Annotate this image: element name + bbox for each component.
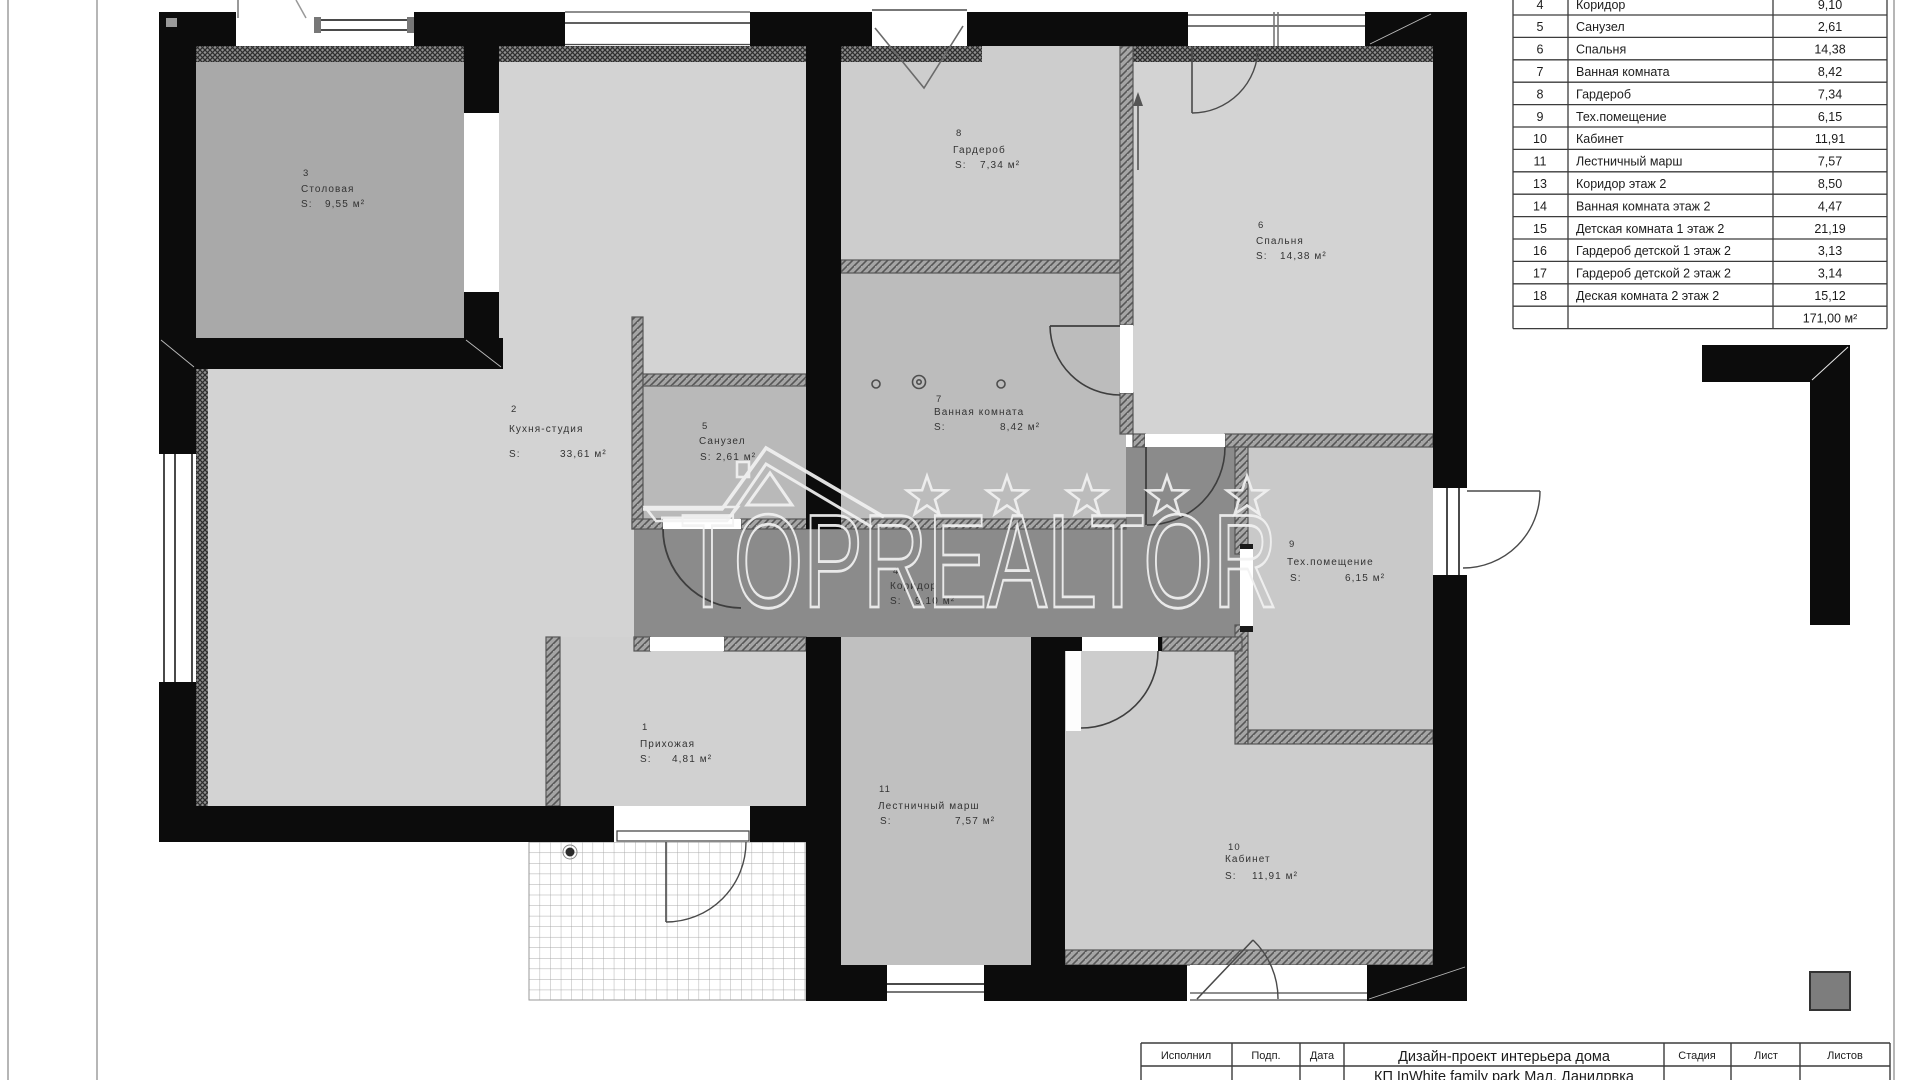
svg-text:17: 17 xyxy=(1533,267,1547,281)
svg-text:S:: S: xyxy=(640,754,652,765)
svg-text:Дизайн-проект интерьера дома: Дизайн-проект интерьера дома xyxy=(1398,1049,1611,1065)
svg-text:7: 7 xyxy=(1537,65,1544,79)
svg-text:Детская комната 1 этаж 2: Детская комната 1 этаж 2 xyxy=(1576,222,1724,236)
svg-text:Ванная комната этаж 2: Ванная комната этаж 2 xyxy=(1576,199,1711,213)
svg-text:6,15 м²: 6,15 м² xyxy=(1345,573,1385,584)
svg-text:7,34 м²: 7,34 м² xyxy=(980,160,1020,171)
svg-text:Прихожая: Прихожая xyxy=(640,739,695,750)
svg-text:Деская комната 2 этаж 2: Деская комната 2 этаж 2 xyxy=(1576,289,1719,303)
svg-text:S:: S: xyxy=(1225,871,1237,882)
svg-text:Спальня: Спальня xyxy=(1256,236,1304,247)
svg-text:Спальня: Спальня xyxy=(1576,43,1626,57)
svg-text:11: 11 xyxy=(879,784,891,795)
svg-text:Гардероб: Гардероб xyxy=(953,144,1006,156)
svg-text:7: 7 xyxy=(936,394,942,405)
svg-text:Дата: Дата xyxy=(1310,1050,1335,1062)
svg-text:Исполнил: Исполнил xyxy=(1161,1050,1211,1062)
svg-text:9: 9 xyxy=(1289,539,1295,550)
svg-text:5: 5 xyxy=(702,421,708,432)
svg-text:S:: S: xyxy=(1256,251,1268,262)
svg-text:8: 8 xyxy=(956,128,962,139)
svg-text:15,12: 15,12 xyxy=(1814,289,1845,303)
svg-text:Санузел: Санузел xyxy=(699,436,746,447)
svg-text:9,10: 9,10 xyxy=(1818,0,1842,12)
svg-text:15: 15 xyxy=(1533,222,1547,236)
svg-text:Кабинет: Кабинет xyxy=(1225,853,1271,865)
svg-text:3,14: 3,14 xyxy=(1818,267,1842,281)
svg-text:Лестничный марш: Лестничный марш xyxy=(878,801,980,812)
svg-text:S:: S: xyxy=(509,449,521,460)
svg-text:Ванная комната: Ванная комната xyxy=(934,407,1024,418)
svg-text:7,34: 7,34 xyxy=(1818,87,1842,101)
svg-text:10: 10 xyxy=(1533,132,1547,146)
svg-text:6: 6 xyxy=(1258,220,1264,231)
svg-text:Тех.помещение: Тех.помещение xyxy=(1287,557,1374,568)
svg-text:8: 8 xyxy=(1537,87,1544,101)
svg-text:13: 13 xyxy=(1533,177,1547,191)
svg-text:S:: S: xyxy=(880,816,892,827)
svg-text:Столовая: Столовая xyxy=(301,184,355,195)
svg-text:Ванная комната: Ванная комната xyxy=(1576,65,1670,79)
svg-text:171,00 м²: 171,00 м² xyxy=(1803,311,1857,325)
svg-text:S:: S: xyxy=(700,452,712,463)
svg-text:4,81 м²: 4,81 м² xyxy=(672,754,712,765)
svg-text:11,91: 11,91 xyxy=(1815,132,1845,146)
svg-text:21,19: 21,19 xyxy=(1814,222,1845,236)
svg-text:Санузел: Санузел xyxy=(1576,20,1625,34)
svg-text:14,38: 14,38 xyxy=(1814,43,1845,57)
svg-text:Гардероб детской 1 этаж 2: Гардероб детской 1 этаж 2 xyxy=(1576,244,1731,258)
svg-text:2,61: 2,61 xyxy=(1818,20,1842,34)
svg-text:S:: S: xyxy=(934,422,946,433)
svg-text:S:: S: xyxy=(301,199,313,210)
svg-text:1: 1 xyxy=(642,722,648,733)
svg-text:S:: S: xyxy=(1290,573,1302,584)
svg-text:6: 6 xyxy=(1537,43,1544,57)
svg-text:Лист: Лист xyxy=(1754,1050,1778,1062)
svg-text:6,15: 6,15 xyxy=(1818,110,1842,124)
svg-text:14,38 м²: 14,38 м² xyxy=(1280,251,1327,262)
svg-text:КП InWhite family park Мал. Да: КП InWhite family park Мал. Данилрвка xyxy=(1374,1069,1635,1080)
svg-text:5: 5 xyxy=(1537,20,1544,34)
svg-text:3: 3 xyxy=(303,168,309,179)
svg-text:8,50: 8,50 xyxy=(1818,177,1842,191)
svg-text:Кабинет: Кабинет xyxy=(1576,132,1624,146)
svg-text:4: 4 xyxy=(1537,0,1544,12)
svg-text:7,57 м²: 7,57 м² xyxy=(955,816,995,827)
svg-text:33,61 м²: 33,61 м² xyxy=(560,449,607,460)
svg-text:3,13: 3,13 xyxy=(1818,244,1842,258)
svg-text:Лестничный марш: Лестничный марш xyxy=(1576,155,1682,169)
svg-text:Кухня-студия: Кухня-студия xyxy=(509,424,584,435)
svg-text:S:: S: xyxy=(955,160,967,171)
svg-text:Тех.помещение: Тех.помещение xyxy=(1576,110,1667,124)
svg-text:9: 9 xyxy=(1537,110,1544,124)
svg-text:16: 16 xyxy=(1533,244,1547,258)
svg-text:TOPREALTOR: TOPREALTOR xyxy=(681,488,1278,636)
svg-text:10: 10 xyxy=(1228,842,1241,853)
svg-text:4,47: 4,47 xyxy=(1818,199,1842,213)
svg-text:8,42 м²: 8,42 м² xyxy=(1000,422,1040,433)
svg-text:2: 2 xyxy=(511,404,517,415)
svg-text:Стадия: Стадия xyxy=(1678,1050,1716,1062)
svg-text:Гардероб: Гардероб xyxy=(1576,87,1631,101)
svg-text:7,57: 7,57 xyxy=(1818,155,1842,169)
svg-text:8,42: 8,42 xyxy=(1818,65,1842,79)
svg-text:Подп.: Подп. xyxy=(1251,1050,1280,1062)
svg-text:Гардероб детской 2 этаж 2: Гардероб детской 2 этаж 2 xyxy=(1576,267,1731,281)
svg-text:11,91 м²: 11,91 м² xyxy=(1252,871,1298,882)
svg-text:Коридор: Коридор xyxy=(1576,0,1625,12)
svg-text:9,55 м²: 9,55 м² xyxy=(325,199,365,210)
svg-text:11: 11 xyxy=(1534,155,1547,169)
svg-text:18: 18 xyxy=(1533,289,1547,303)
svg-text:14: 14 xyxy=(1533,199,1547,213)
svg-text:Листов: Листов xyxy=(1827,1050,1863,1062)
svg-text:Коридор этаж 2: Коридор этаж 2 xyxy=(1576,177,1666,191)
